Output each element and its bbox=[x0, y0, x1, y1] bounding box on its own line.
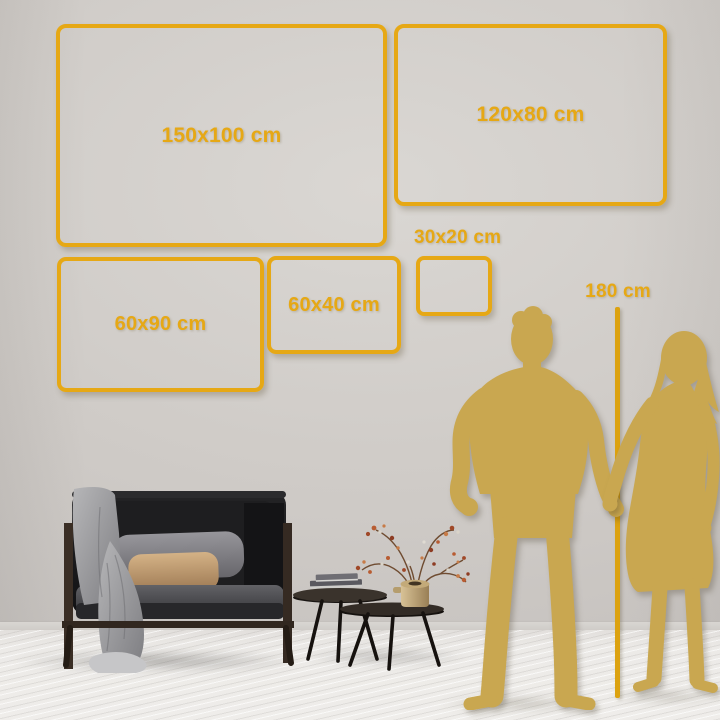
size-frame-60x90: 60x90 cm bbox=[57, 257, 264, 392]
size-guide-image: 150x100 cm 120x80 cm 60x90 cm 60x40 cm 3… bbox=[0, 0, 720, 720]
size-frame-120x80: 120x80 cm bbox=[394, 24, 667, 206]
woman-silhouette bbox=[596, 328, 720, 706]
coffee-table-low bbox=[340, 603, 444, 670]
height-ruler-label: 180 cm bbox=[575, 281, 661, 303]
size-label-30x20: 30x20 cm bbox=[414, 227, 501, 249]
size-label-150x100: 150x100 cm bbox=[162, 124, 282, 148]
size-label-60x90: 60x90 cm bbox=[115, 313, 207, 336]
books bbox=[310, 573, 362, 589]
size-label-120x80: 120x80 cm bbox=[476, 103, 584, 127]
size-label-60x40: 60x40 cm bbox=[288, 294, 380, 317]
coffee-table-tall bbox=[293, 573, 387, 661]
size-frame-60x40: 60x40 cm bbox=[267, 256, 401, 354]
sofa bbox=[12, 487, 304, 677]
size-frame-150x100: 150x100 cm bbox=[56, 24, 387, 247]
